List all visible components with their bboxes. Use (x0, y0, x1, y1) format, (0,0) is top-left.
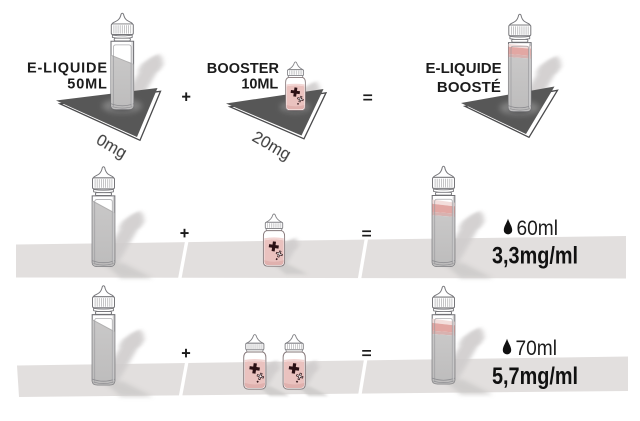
svg-text:70ml: 70ml (516, 337, 557, 360)
svg-text:E-LIQUIDE: E-LIQUIDE (426, 60, 503, 77)
svg-text:E-LIQUIDE: E-LIQUIDE (27, 60, 108, 76)
svg-text:BOOSTER: BOOSTER (207, 61, 280, 77)
svg-text:5,7mg/ml: 5,7mg/ml (492, 362, 578, 389)
svg-text:10ML: 10ML (241, 77, 279, 93)
svg-text:BOOSTÉ: BOOSTÉ (437, 79, 502, 96)
svg-text:60ml: 60ml (517, 217, 558, 240)
svg-text:50ML: 50ML (67, 77, 108, 93)
svg-text:3,3mg/ml: 3,3mg/ml (492, 242, 578, 269)
